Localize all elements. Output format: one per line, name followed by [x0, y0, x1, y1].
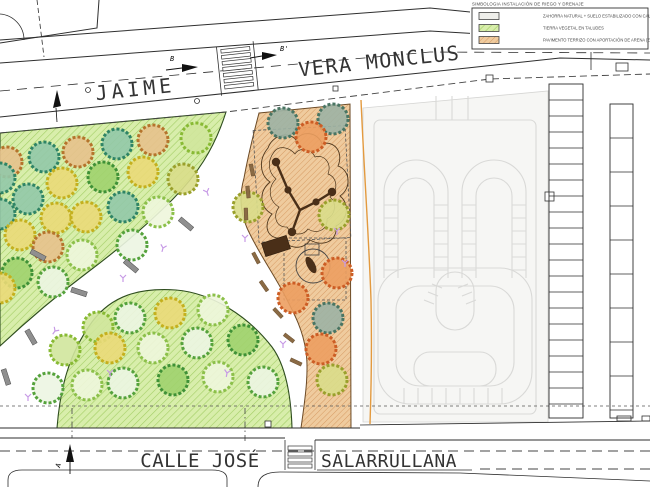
- parking-bay-left: [8, 470, 227, 487]
- edge-segment: [290, 358, 302, 366]
- tree: [33, 373, 63, 403]
- tree: [115, 303, 145, 333]
- section-label-b: B: [170, 55, 174, 63]
- tree: [248, 367, 278, 397]
- tree: [181, 123, 211, 153]
- sprinkler-icon: [242, 235, 248, 242]
- tree: [203, 362, 233, 392]
- legend-title: SIMBOLOGIA INSTALACIÓN DE RIEGO Y DRENAJ…: [472, 2, 584, 7]
- tree: [182, 328, 212, 358]
- parking-stall: [642, 416, 650, 421]
- edge-segment: [244, 208, 248, 220]
- section-marker-a: A: [54, 444, 74, 474]
- sprinkler-icon: [203, 188, 211, 197]
- crosswalk-bottom: [285, 440, 315, 470]
- bench: [123, 259, 138, 273]
- tree: [128, 157, 158, 187]
- utility-symbol: [86, 88, 91, 93]
- legend-label-zahorra: ZAHORRA NATURAL + SUELO ESTABILIZADO CON…: [543, 14, 650, 19]
- site-plan: B B' JAIME VERA MONCLUS: [0, 0, 650, 487]
- tree: [322, 258, 352, 288]
- legend-label-tierra-vegetal: TIERRA VEGETAL EN TALUDES: [543, 26, 604, 31]
- tree: [268, 108, 298, 138]
- tree: [47, 168, 77, 198]
- tree: [63, 137, 93, 167]
- parking-strip: [610, 104, 633, 418]
- tree: [50, 335, 80, 365]
- legend-swatch-pavimento: [479, 37, 499, 44]
- parking-strip: [549, 84, 583, 418]
- tree: [278, 283, 308, 313]
- tree: [313, 303, 343, 333]
- tree: [317, 365, 347, 395]
- parking-strips: [545, 84, 633, 418]
- sprinkler-icon: [280, 341, 286, 348]
- tree: [296, 122, 326, 152]
- tree: [155, 298, 185, 328]
- tree: [13, 184, 43, 214]
- bench: [178, 217, 193, 231]
- boundary-node: [486, 75, 493, 82]
- tree: [95, 333, 125, 363]
- tree: [138, 333, 168, 363]
- tree: [319, 200, 349, 230]
- crosswalk-top: [216, 41, 258, 96]
- tree: [168, 164, 198, 194]
- street-name-calle-jose: CALLE JOSÉ: [140, 449, 259, 472]
- sprinkler-icon: [50, 327, 59, 336]
- boundary-node: [333, 86, 338, 91]
- bench: [71, 287, 88, 297]
- bench: [1, 369, 11, 386]
- legend-swatch-tierra-vegetal: [479, 25, 499, 32]
- street-name-salarrullana: SALARRULLANA: [321, 451, 457, 472]
- tree: [117, 230, 147, 260]
- building-corner: [0, 0, 99, 57]
- tree: [198, 295, 228, 325]
- north-arrow: [53, 90, 61, 122]
- sprinkler-icon: [159, 244, 167, 252]
- bottom-far-edge: [460, 473, 650, 481]
- legend-swatch-zahorra: [479, 13, 499, 20]
- boundary-node: [265, 421, 271, 427]
- tree: [38, 267, 68, 297]
- site-plan-svg: B B' JAIME VERA MONCLUS: [0, 0, 650, 487]
- tree: [71, 202, 101, 232]
- tree: [143, 197, 173, 227]
- tree: [138, 125, 168, 155]
- parking-stall: [617, 416, 631, 421]
- street-name-vera-monclus: VERA MONCLUS: [297, 41, 461, 82]
- sprinkler-icon: [25, 394, 31, 401]
- section-marker-b-prime: B': [250, 45, 288, 60]
- legend-label-pavimento: PAVIMENTO TERRIZO CON APORTACIÓN DE AREN…: [543, 38, 650, 43]
- section-label-b-prime: B': [280, 45, 288, 53]
- parking-bay-right: [258, 472, 460, 487]
- street-furniture: [591, 52, 628, 71]
- tree: [306, 334, 336, 364]
- bench: [25, 329, 37, 345]
- section-label-a: A: [54, 462, 63, 469]
- tree: [108, 192, 138, 222]
- section-marker-b: B: [166, 55, 198, 72]
- tree: [158, 365, 188, 395]
- tree: [41, 203, 71, 233]
- tree: [88, 162, 118, 192]
- tree: [67, 240, 97, 270]
- tree: [5, 220, 35, 250]
- tree: [72, 370, 102, 400]
- tree: [102, 129, 132, 159]
- legend: SIMBOLOGIA INSTALACIÓN DE RIEGO Y DRENAJ…: [470, 0, 650, 50]
- tree: [29, 142, 59, 172]
- pumptrack-area: [363, 91, 548, 422]
- tree: [108, 368, 138, 398]
- sprinkler-icon: [120, 275, 126, 282]
- edge-segment: [252, 252, 261, 264]
- edge-segment: [259, 280, 269, 292]
- tree: [228, 325, 258, 355]
- utility-symbol: [195, 99, 200, 104]
